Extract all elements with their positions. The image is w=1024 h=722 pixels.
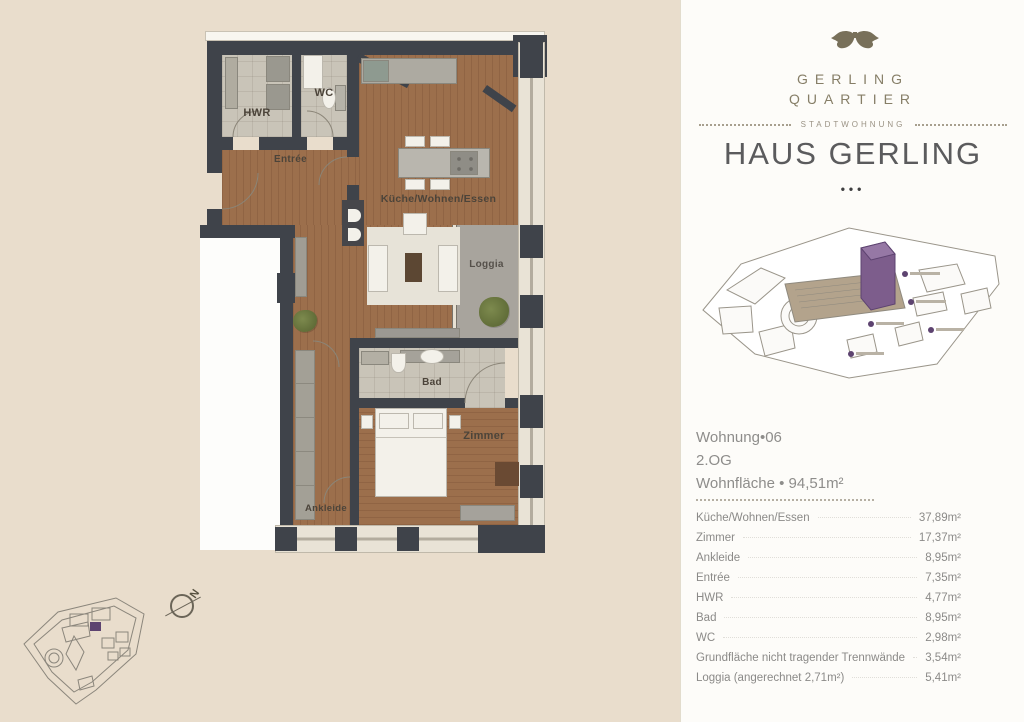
pillow	[413, 413, 443, 429]
armchair	[403, 213, 427, 235]
room-row-value: 17,37m²	[919, 532, 961, 544]
sofa-left	[368, 245, 388, 292]
room-row: Küche/Wohnen/Essen37,89m²	[696, 512, 961, 532]
room-row-value: 37,89m²	[919, 512, 961, 524]
gerling-crest-icon	[829, 30, 881, 64]
dotted-separator	[696, 499, 874, 501]
room-row-leader	[913, 657, 917, 658]
room-row-label: Zimmer	[696, 532, 735, 544]
room-row-label: Bad	[696, 612, 716, 624]
wc-sink	[303, 55, 323, 89]
desk-chair	[348, 228, 361, 241]
site-plan-illustration	[699, 212, 1009, 397]
apartment-area: Wohnfläche • 94,51m²	[696, 472, 844, 495]
wall-hwr-wc-divider	[292, 53, 301, 137]
coffee-table	[405, 253, 422, 282]
page-title: HAUS GERLING	[681, 136, 1024, 172]
room-row-leader	[724, 617, 917, 618]
room-row: Bad8,95m²	[696, 612, 961, 632]
window-pier	[520, 395, 543, 428]
room-row-value: 7,35m²	[925, 572, 961, 584]
label-hwr: HWR	[222, 107, 292, 119]
room-row-value: 8,95m²	[925, 612, 961, 624]
window-pier	[275, 527, 297, 551]
tv-sideboard	[375, 328, 460, 338]
bench	[460, 505, 515, 521]
brand-line2: QUARTIER	[681, 90, 1024, 109]
bar-chair	[430, 179, 450, 190]
apartment-info: Wohnung•06 2.OG Wohnfläche • 94,51m²	[696, 426, 844, 495]
neighbor-unit-area	[200, 237, 280, 550]
room-row-label: Küche/Wohnen/Essen	[696, 512, 810, 524]
cooktop	[450, 151, 478, 175]
bar-chair	[405, 179, 425, 190]
room-row-value: 5,41m²	[925, 672, 961, 684]
bar-chair	[405, 136, 425, 147]
room-row: HWR4,77m²	[696, 592, 961, 612]
room-row: Loggia (angerechnet 2,71m²)5,41m²	[696, 672, 961, 692]
wall-left-upper	[207, 41, 222, 173]
room-row-label: Ankleide	[696, 552, 740, 564]
facade-outer-line-top	[205, 31, 545, 41]
room-row-label: Entrée	[696, 572, 730, 584]
room-row-label: WC	[696, 632, 715, 644]
bar-chair	[430, 136, 450, 147]
apartment-unit: Wohnung•06	[696, 426, 844, 449]
wall-pier-living	[277, 273, 295, 303]
window-pier	[335, 527, 357, 551]
room-row-label: HWR	[696, 592, 723, 604]
wall-bad-bottom-return	[505, 398, 518, 408]
label-kitchen: Küche/Wohnen/Essen	[359, 193, 518, 205]
brand-line1: GERLING	[681, 70, 1024, 89]
window-pier	[520, 465, 543, 498]
label-ankleide: Ankleide	[291, 503, 361, 514]
label-zimmer: Zimmer	[450, 430, 518, 442]
desk-chair	[348, 209, 361, 222]
blanket-fold-line	[376, 437, 446, 438]
room-row-value: 3,54m²	[925, 652, 961, 664]
room-row-value: 8,95m²	[925, 552, 961, 564]
kitchen-sink	[363, 60, 389, 82]
window-pier	[520, 225, 543, 258]
room-row-label: Loggia (angerechnet 2,71m²)	[696, 672, 844, 684]
window-pier	[397, 527, 419, 551]
room-row-leader	[852, 677, 917, 678]
wall-hwr-bottom-b	[259, 137, 307, 150]
nightstand	[361, 415, 373, 429]
window-pier-corner	[478, 525, 545, 553]
shower-bench	[361, 351, 389, 365]
wall-ankleide-right	[350, 338, 359, 525]
floor-plan: Entrée HWR WC Küche/Wohnen/Essen Loggia …	[195, 25, 547, 555]
apartment-floor: 2.OG	[696, 449, 844, 472]
pillow	[379, 413, 409, 429]
bad-toilet	[391, 353, 406, 373]
room-row-leader	[743, 537, 911, 538]
room-row-leader	[818, 517, 911, 518]
room-row-leader	[731, 597, 917, 598]
tagline-row: STADTWOHNUNG	[681, 120, 1024, 129]
lounge-chair	[495, 462, 519, 486]
label-bad: Bad	[359, 377, 505, 388]
room-row-label: Grundfläche nicht tragender Trennwände	[696, 652, 905, 664]
brochure-page: Entrée HWR WC Küche/Wohnen/Essen Loggia …	[0, 0, 1024, 722]
mini-map-highlight	[90, 622, 101, 631]
room-row-value: 4,77m²	[925, 592, 961, 604]
window-pier	[520, 42, 543, 78]
room-row: Entrée7,35m²	[696, 572, 961, 592]
wall-hwr-bottom-a	[222, 137, 233, 150]
tagline-dots-left	[699, 124, 791, 126]
room-row: Grundfläche nicht tragender Trennwände3,…	[696, 652, 961, 672]
room-row: WC2,98m²	[696, 632, 961, 652]
tagline-text: STADTWOHNUNG	[801, 120, 906, 129]
wardrobe	[295, 350, 315, 520]
wall-top	[207, 41, 547, 55]
room-row: Zimmer17,37m²	[696, 532, 961, 552]
hwr-shelf	[225, 57, 238, 109]
mini-site-map	[18, 592, 168, 714]
nightstand	[449, 415, 461, 429]
room-row: Ankleide8,95m²	[696, 552, 961, 572]
wall-wc-bottom	[333, 137, 359, 150]
sideboard	[295, 237, 307, 297]
tagline-dots-right	[915, 124, 1007, 126]
label-loggia: Loggia	[455, 259, 518, 270]
wall-bad-top	[350, 338, 518, 348]
room-row-leader	[723, 637, 917, 638]
room-row-value: 2,98m²	[925, 632, 961, 644]
label-wc: WC	[301, 87, 347, 99]
room-row-leader	[738, 577, 917, 578]
bath-sink	[420, 349, 444, 364]
room-row-leader	[748, 557, 917, 558]
info-panel: GERLING QUARTIER STADTWOHNUNG HAUS GERLI…	[680, 0, 1024, 722]
washer	[266, 56, 290, 82]
window-pier	[520, 295, 543, 328]
title-dots: •••	[681, 182, 1024, 196]
rooms-table: Küche/Wohnen/Essen37,89m²Zimmer17,37m²An…	[696, 512, 961, 692]
wall-bad-bottom	[350, 398, 465, 408]
label-entree: Entrée	[222, 154, 359, 165]
